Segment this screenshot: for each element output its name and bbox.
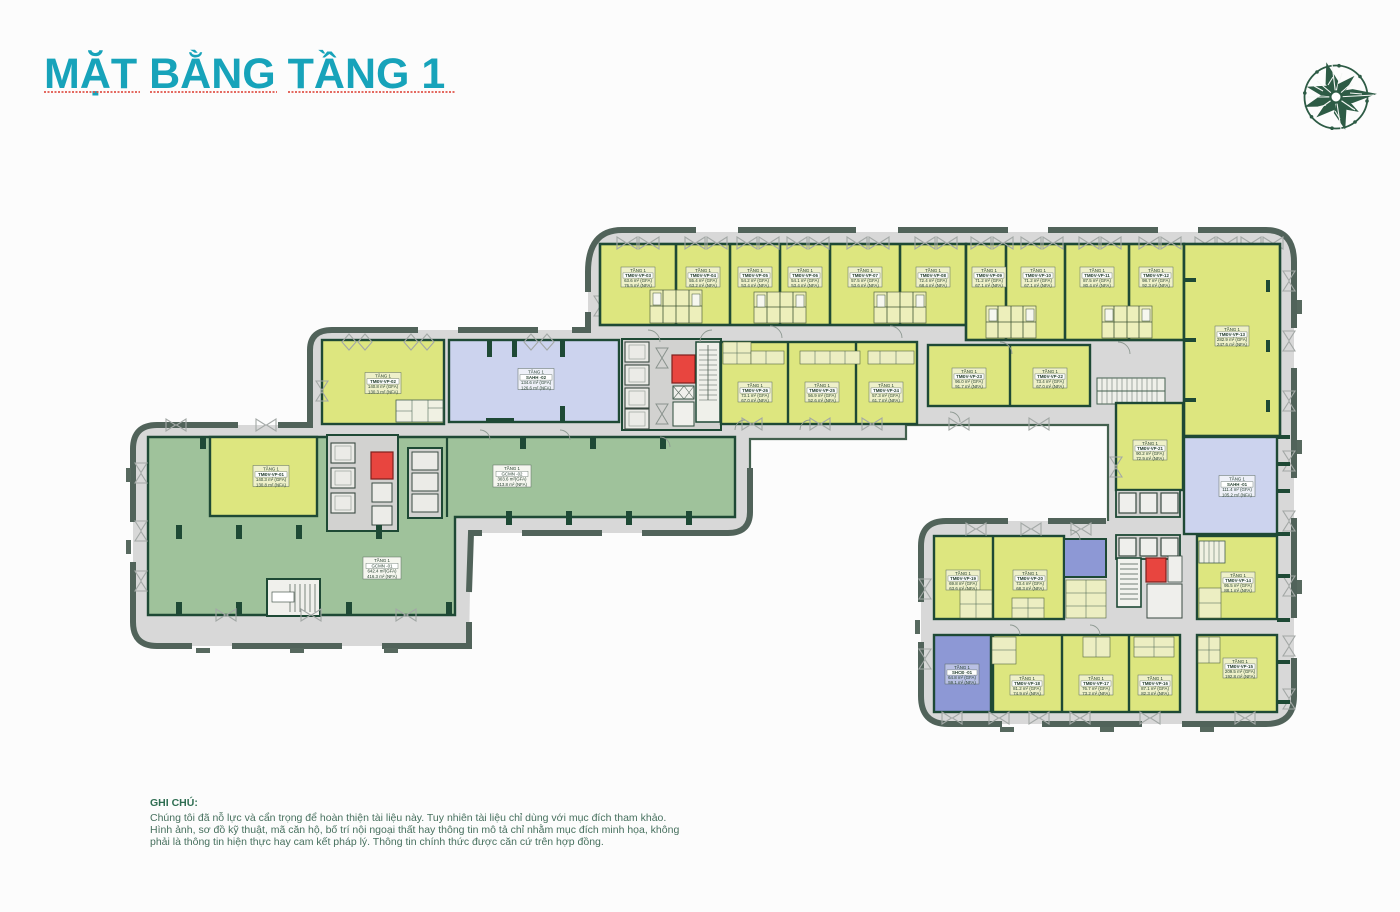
- svg-text:73.2 m² (NFA): 73.2 m² (NFA): [1082, 691, 1110, 696]
- svg-text:52.6 m² (NFA): 52.6 m² (NFA): [808, 398, 836, 403]
- svg-text:Chúng tôi đã nỗ lực và cẩn trọ: Chúng tôi đã nỗ lực và cẩn trọng để hoàn…: [150, 811, 666, 824]
- svg-text:phải là thông tin hiện thực ha: phải là thông tin hiện thực hay cam kết …: [150, 836, 604, 848]
- svg-text:MẶT BẰNG TẦNG 1: MẶT BẰNG TẦNG 1: [44, 50, 445, 98]
- svg-text:247.6 m² (NFA): 247.6 m² (NFA): [1217, 342, 1248, 347]
- svg-text:88.1 m² (NFA): 88.1 m² (NFA): [1224, 588, 1252, 593]
- svg-text:416.3 m² (NFA): 416.3 m² (NFA): [367, 574, 398, 579]
- svg-text:74.9 m² (NFA): 74.9 m² (NFA): [1013, 691, 1041, 696]
- svg-text:67.1 m² (NFA): 67.1 m² (NFA): [1024, 283, 1052, 288]
- svg-text:105.2 m² (NFA): 105.2 m² (NFA): [1222, 492, 1253, 497]
- svg-text:76.5 m² (NFA): 76.5 m² (NFA): [624, 283, 652, 288]
- svg-text:TẦNG 1: TẦNG 1: [1229, 477, 1245, 482]
- svg-text:TẦNG 1: TẦNG 1: [375, 374, 391, 379]
- svg-text:130.3 m² (NFA): 130.3 m² (NFA): [368, 389, 399, 394]
- svg-text:130.8 m² (NFA): 130.8 m² (NFA): [256, 482, 287, 487]
- svg-text:TẦNG 1: TẦNG 1: [504, 466, 520, 471]
- svg-text:67.0 m² (NFA): 67.0 m² (NFA): [1036, 384, 1064, 389]
- svg-text:192.8 m² (NFA): 192.8 m² (NFA): [1225, 674, 1256, 679]
- svg-text:GHI CHÚ:: GHI CHÚ:: [150, 796, 198, 809]
- svg-text:82.3 m² (NFA): 82.3 m² (NFA): [1141, 691, 1169, 696]
- svg-text:61.7 m² (NFA): 61.7 m² (NFA): [872, 398, 900, 403]
- svg-text:92.3 m² (NFA): 92.3 m² (NFA): [1142, 283, 1170, 288]
- svg-text:67.1 m² (NFA): 67.1 m² (NFA): [975, 283, 1003, 288]
- svg-text:TẦNG 1: TẦNG 1: [528, 370, 544, 375]
- svg-text:126.6 m² (NFA): 126.6 m² (NFA): [521, 385, 552, 390]
- svg-text:68.4 m² (NFA): 68.4 m² (NFA): [919, 283, 947, 288]
- svg-text:53.4 m² (NFA): 53.4 m² (NFA): [741, 283, 769, 288]
- svg-text:80.4 m² (NFA): 80.4 m² (NFA): [1083, 283, 1111, 288]
- svg-text:91.7 m² (NFA): 91.7 m² (NFA): [955, 384, 983, 389]
- svg-text:TẦNG 1: TẦNG 1: [263, 467, 279, 472]
- svg-text:72.9 m² (NFA): 72.9 m² (NFA): [1136, 456, 1164, 461]
- svg-text:Hình ảnh, sơ đồ kỹ thuật, mã c: Hình ảnh, sơ đồ kỹ thuật, mã căn hộ, bố …: [150, 823, 679, 836]
- svg-text:67.0 m² (NFA): 67.0 m² (NFA): [741, 398, 769, 403]
- svg-text:313.8 m² (NFA): 313.8 m² (NFA): [497, 482, 528, 487]
- svg-text:TẦNG 1: TẦNG 1: [374, 558, 390, 563]
- svg-text:63.2 m² (NFA): 63.2 m² (NFA): [689, 283, 717, 288]
- svg-text:53.6 m² (NFA): 53.6 m² (NFA): [851, 283, 879, 288]
- svg-text:59.1 m² (NFA): 59.1 m² (NFA): [948, 680, 976, 685]
- svg-text:53.4 m² (NFA): 53.4 m² (NFA): [791, 283, 819, 288]
- svg-text:68.3 m² (NFA): 68.3 m² (NFA): [1016, 586, 1044, 591]
